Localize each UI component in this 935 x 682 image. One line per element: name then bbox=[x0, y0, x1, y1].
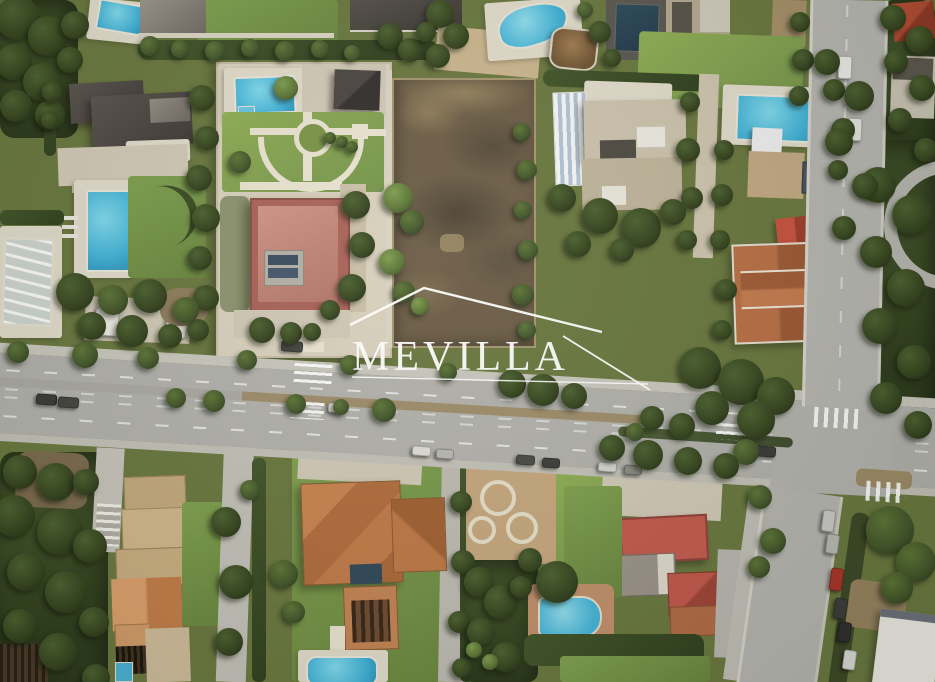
beige-villa-courtyard bbox=[600, 140, 636, 160]
tree bbox=[42, 82, 62, 102]
garden-ring-1 bbox=[480, 480, 516, 516]
tree bbox=[270, 560, 298, 588]
tree bbox=[416, 22, 436, 42]
vacant-plot-patch bbox=[440, 234, 464, 252]
tree bbox=[3, 609, 37, 643]
tree bbox=[510, 576, 532, 598]
bl-terrace bbox=[145, 627, 191, 682]
tree bbox=[862, 308, 898, 344]
tree bbox=[443, 23, 469, 49]
tree bbox=[56, 273, 94, 311]
beige-villa-skylight bbox=[636, 126, 666, 149]
tree bbox=[411, 297, 429, 315]
villa1-loungers bbox=[62, 212, 78, 238]
tree bbox=[158, 324, 182, 348]
tree bbox=[188, 246, 212, 270]
tree bbox=[303, 323, 321, 341]
tree bbox=[498, 370, 526, 398]
tree bbox=[249, 317, 275, 343]
crosswalk-right bbox=[865, 481, 906, 504]
tree bbox=[888, 108, 912, 132]
br-white-building bbox=[871, 609, 935, 682]
tree bbox=[517, 160, 537, 180]
tree bbox=[338, 274, 366, 302]
crosswalk-upper bbox=[293, 363, 332, 387]
car-row-1 bbox=[412, 445, 432, 456]
tree bbox=[383, 183, 413, 213]
tree bbox=[7, 341, 29, 363]
villa1-roof-pale bbox=[149, 97, 190, 123]
tree bbox=[39, 633, 77, 671]
tree bbox=[548, 184, 576, 212]
tree bbox=[748, 556, 770, 578]
tree bbox=[518, 548, 542, 572]
tree bbox=[518, 240, 538, 260]
tree bbox=[748, 485, 772, 509]
tree bbox=[324, 132, 336, 144]
tree bbox=[286, 394, 306, 414]
tree bbox=[852, 173, 878, 199]
tree bbox=[633, 440, 663, 470]
car-row-5 bbox=[598, 461, 618, 472]
tree bbox=[372, 398, 396, 422]
tree bbox=[346, 141, 358, 153]
tree bbox=[892, 195, 932, 235]
car-row-2 bbox=[436, 448, 455, 459]
tree bbox=[599, 435, 625, 461]
tree bbox=[450, 491, 472, 513]
tree bbox=[240, 480, 260, 500]
tree bbox=[439, 363, 457, 381]
bl-mini-pool bbox=[115, 662, 133, 682]
tree bbox=[832, 216, 856, 240]
car-dark-2 bbox=[58, 396, 80, 408]
tree bbox=[561, 383, 587, 409]
tree bbox=[518, 321, 536, 339]
tree bbox=[173, 297, 199, 323]
tree bbox=[880, 5, 906, 31]
tree bbox=[825, 128, 853, 156]
tree bbox=[189, 85, 215, 111]
covered-pool bbox=[1, 237, 54, 327]
garden-ring-2 bbox=[506, 512, 538, 544]
tree bbox=[116, 315, 148, 347]
tree bbox=[870, 382, 902, 414]
tree bbox=[884, 50, 908, 74]
tree bbox=[790, 12, 810, 32]
tree bbox=[140, 36, 160, 56]
tree bbox=[186, 165, 212, 191]
car-street-2 bbox=[825, 533, 841, 555]
tree bbox=[737, 401, 775, 439]
tree bbox=[711, 184, 733, 206]
tree bbox=[466, 642, 482, 658]
tree bbox=[237, 350, 257, 370]
tree bbox=[712, 320, 732, 340]
tree bbox=[677, 230, 697, 250]
tree bbox=[349, 232, 375, 258]
tree bbox=[514, 201, 532, 219]
tree bbox=[904, 411, 932, 439]
tree bbox=[45, 571, 87, 613]
tree bbox=[565, 231, 591, 257]
tree bbox=[78, 312, 106, 340]
tree bbox=[0, 90, 32, 122]
wall-top bbox=[138, 33, 334, 38]
fr-tan-patio bbox=[747, 151, 805, 199]
tree bbox=[275, 41, 295, 61]
tree bbox=[79, 607, 109, 637]
tree bbox=[211, 507, 241, 537]
tree bbox=[640, 406, 664, 430]
tree bbox=[137, 347, 159, 369]
tree bbox=[710, 230, 730, 250]
cc-villa-blue-patch bbox=[350, 563, 383, 584]
cc-tower-dark bbox=[351, 599, 390, 642]
tree bbox=[7, 553, 45, 591]
tree bbox=[860, 236, 892, 268]
tree bbox=[215, 628, 243, 656]
tree bbox=[280, 322, 302, 344]
tree bbox=[582, 198, 618, 234]
tree bbox=[219, 565, 253, 599]
building-top-d bbox=[700, 0, 730, 32]
tree bbox=[241, 39, 259, 57]
tree bbox=[73, 529, 107, 563]
tree bbox=[61, 11, 89, 39]
tree bbox=[881, 572, 913, 604]
tree bbox=[603, 49, 621, 67]
tree bbox=[577, 2, 593, 18]
villa1-pool bbox=[86, 190, 130, 272]
tree bbox=[695, 391, 729, 425]
tree bbox=[73, 469, 99, 495]
aerial-photo: MEVILLA bbox=[0, 0, 935, 682]
tree bbox=[589, 21, 611, 43]
tree bbox=[57, 47, 83, 73]
tree bbox=[610, 238, 634, 262]
tree bbox=[283, 601, 305, 623]
tree bbox=[513, 123, 531, 141]
tree bbox=[679, 347, 721, 389]
tree bbox=[482, 654, 498, 670]
tree bbox=[320, 300, 340, 320]
tree bbox=[823, 79, 845, 101]
tree bbox=[311, 40, 329, 58]
tree bbox=[37, 463, 75, 501]
tree bbox=[512, 284, 534, 306]
tree bbox=[674, 447, 702, 475]
tree bbox=[195, 126, 219, 150]
car-street-4 bbox=[837, 621, 853, 643]
tree bbox=[680, 92, 700, 112]
tree bbox=[814, 49, 840, 75]
tree bbox=[914, 138, 935, 162]
car-row-4 bbox=[542, 457, 561, 468]
tree bbox=[527, 374, 559, 406]
estate-pavilion bbox=[333, 69, 380, 111]
building-top-a bbox=[140, 0, 206, 36]
tree bbox=[393, 281, 415, 303]
tree bbox=[897, 345, 931, 379]
rv-pool bbox=[538, 596, 602, 638]
tree bbox=[789, 86, 809, 106]
estate-left-bed bbox=[220, 196, 250, 312]
tree bbox=[713, 453, 739, 479]
tree bbox=[536, 561, 578, 603]
estate-rooftop-panel-1 bbox=[268, 255, 298, 265]
garden-ring-3 bbox=[468, 516, 496, 544]
tree bbox=[792, 49, 814, 71]
tree bbox=[398, 38, 422, 62]
tree bbox=[844, 81, 874, 111]
tree bbox=[192, 204, 220, 232]
crosswalk-vertical-road bbox=[814, 407, 859, 429]
tree bbox=[133, 279, 167, 313]
tree bbox=[342, 191, 370, 219]
tree bbox=[906, 26, 934, 54]
lawn-bottom-mid bbox=[560, 656, 710, 682]
tree bbox=[400, 210, 424, 234]
tree bbox=[626, 423, 644, 441]
fr-terracotta-cross bbox=[740, 269, 813, 309]
tree bbox=[166, 388, 186, 408]
tree bbox=[379, 249, 405, 275]
cc-villa-wing bbox=[391, 497, 448, 573]
tree bbox=[887, 269, 925, 307]
tree bbox=[98, 285, 128, 315]
tree bbox=[676, 138, 700, 162]
tree bbox=[452, 658, 472, 678]
tree bbox=[41, 111, 59, 129]
estate-rooftop-panel-2 bbox=[268, 268, 298, 278]
car-street-5 bbox=[842, 649, 858, 671]
tree bbox=[426, 44, 450, 68]
tree bbox=[660, 199, 686, 225]
tree bbox=[340, 355, 360, 375]
estate-path-row bbox=[240, 182, 342, 190]
tree bbox=[72, 342, 98, 368]
tree bbox=[760, 528, 786, 554]
tree bbox=[669, 413, 695, 439]
estate-pad-right bbox=[352, 124, 368, 139]
hedge-left-pool bbox=[0, 210, 64, 225]
tree bbox=[229, 151, 251, 173]
tree bbox=[714, 140, 734, 160]
tree bbox=[344, 45, 360, 61]
tree bbox=[171, 40, 189, 58]
tree bbox=[205, 41, 225, 61]
tree bbox=[203, 390, 225, 412]
car-row-3 bbox=[516, 454, 536, 465]
car-dark-1 bbox=[36, 393, 58, 405]
tree bbox=[715, 279, 737, 301]
tree bbox=[333, 399, 349, 415]
tree bbox=[274, 76, 298, 100]
tree bbox=[828, 160, 848, 180]
tree bbox=[187, 319, 209, 341]
tree bbox=[909, 75, 935, 101]
tree bbox=[3, 455, 37, 489]
cc-pool bbox=[306, 656, 378, 682]
